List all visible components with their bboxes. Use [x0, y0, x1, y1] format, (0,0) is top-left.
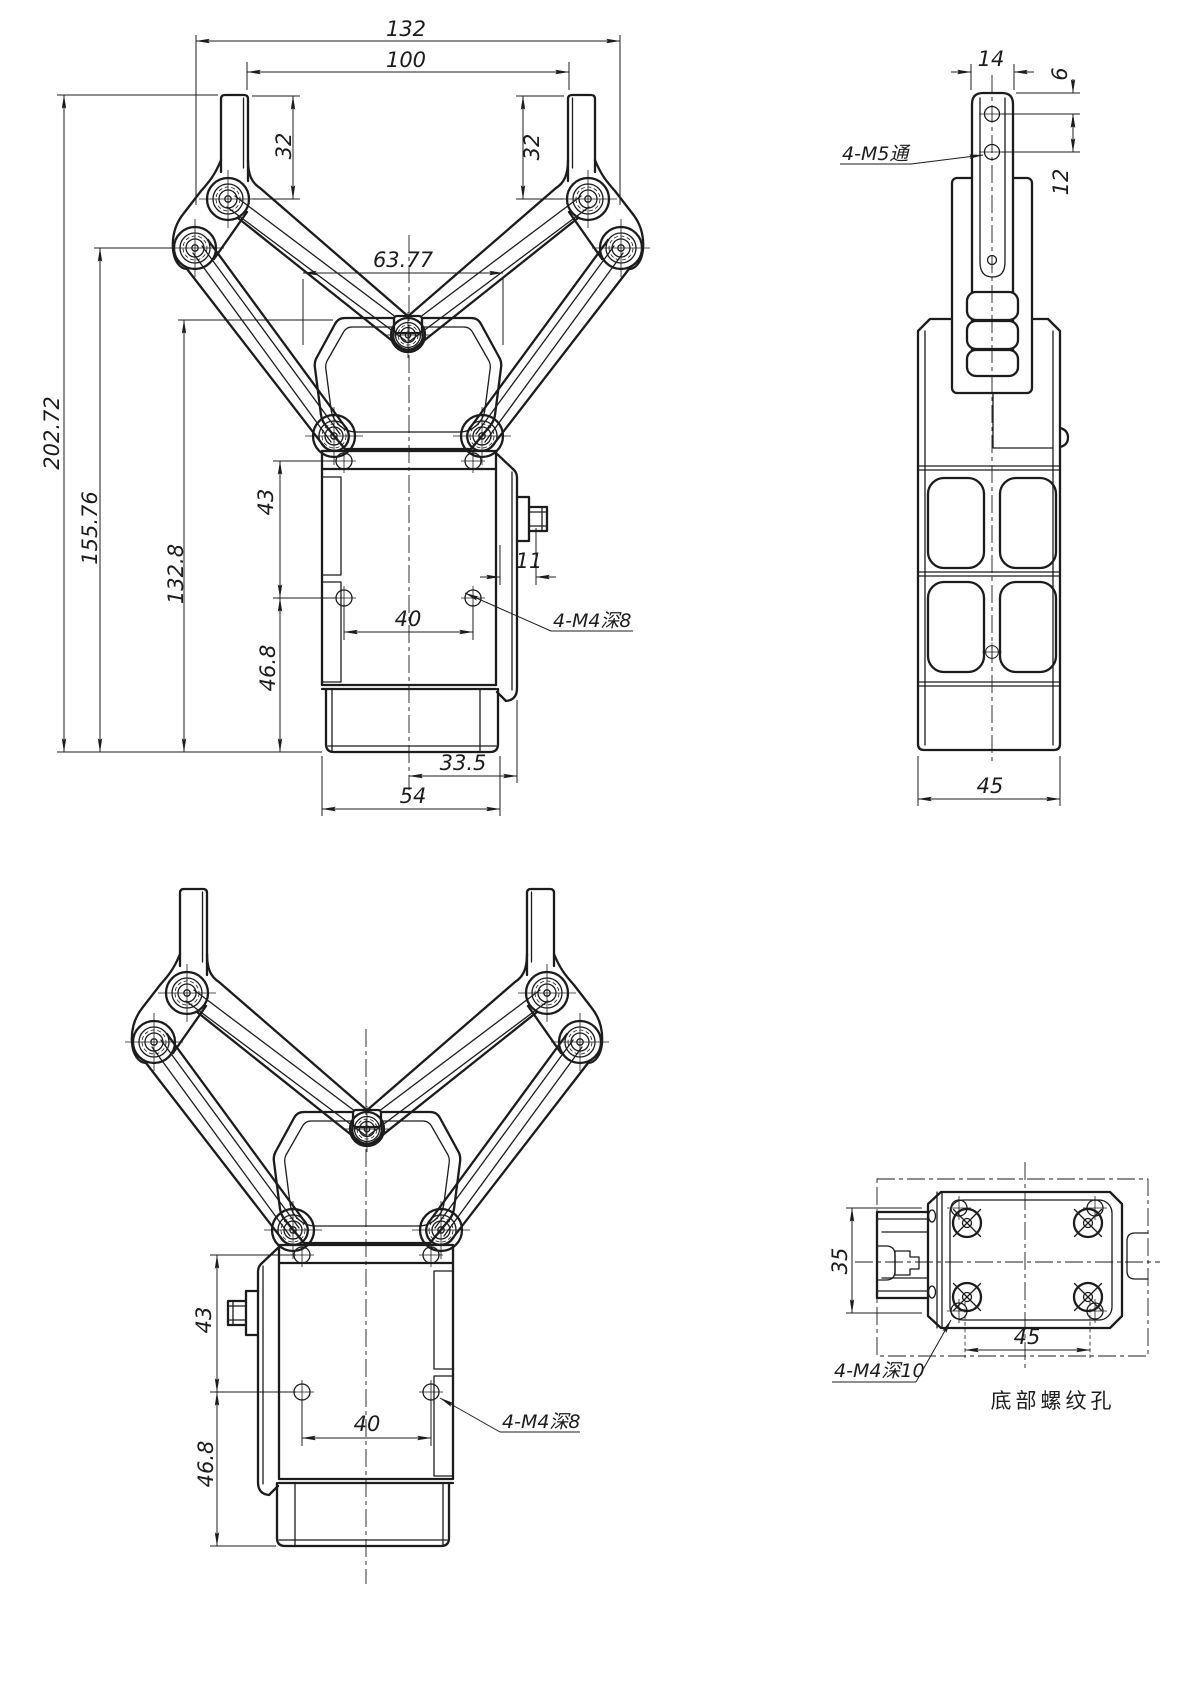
dim-connector-offset-value: 33.5	[440, 751, 487, 775]
dim-hole-hspace-value: 40	[395, 607, 422, 631]
gripper-front-geometry	[166, 95, 650, 790]
dim-fingertip-width-value: 14	[978, 47, 1005, 71]
dim-finger-right-value: 32	[520, 134, 544, 161]
dim-tip-hole-offset-value: 6	[1048, 67, 1072, 80]
dim-body-width-value: 54	[400, 784, 427, 808]
dim-tip-hole-pitch-value: 12	[1049, 169, 1073, 196]
bottom-fingertip-section	[877, 1212, 1148, 1298]
view-side: 14 6 12 4-M5通 45	[840, 47, 1080, 806]
dim-hole-hspace-m-value: 40	[354, 1412, 381, 1436]
dim-base-section-height: 46.8	[256, 598, 280, 752]
dim-hole-hspace: 40	[344, 604, 473, 640]
callout-mirrored-thread-text: 4-M4深8	[502, 1411, 581, 1433]
dim-pivot-height-value: 155.76	[78, 491, 102, 564]
dim-hole-vspace-m-value: 43	[192, 1307, 216, 1334]
dim-body-depth: 45	[918, 756, 1060, 806]
view-bottom: 35 45 4-M4深10 底部螺纹孔	[828, 1162, 1160, 1413]
dim-base-height-m: 46.8	[194, 1392, 276, 1546]
dim-opening-width: 100	[247, 48, 569, 90]
dim-hole-hspace-m: 40	[302, 1398, 431, 1446]
dim-hole-vspace: 43	[254, 461, 337, 598]
engineering-drawing-canvas: 132 100 32 32 63.77 202.72	[0, 0, 1200, 1691]
bottom-view-caption: 底部螺纹孔	[991, 1389, 1116, 1413]
drawing-sheet: 132 100 32 32 63.77 202.72	[0, 0, 1200, 1691]
dim-finger-left: 32	[252, 96, 300, 199]
dim-body-top-height-value: 132.8	[164, 544, 188, 604]
dim-overall-width: 132	[196, 17, 620, 205]
callout-bottom-thread-text: 4-M4深10	[834, 1360, 925, 1382]
callout-bottom-thread: 4-M4深10	[832, 1320, 951, 1382]
bottom-view-boundary	[877, 1179, 1148, 1356]
dim-hole-row-spacing-value: 35	[828, 1248, 852, 1275]
dim-hole-vspace-m: 43	[192, 1255, 296, 1392]
callout-mirrored-thread: 4-M4深8	[440, 1398, 581, 1433]
callout-side-thread: 4-M5通	[840, 143, 983, 165]
dim-base-height-m-value: 46.8	[194, 1441, 218, 1488]
dim-finger-right: 32	[516, 96, 564, 199]
dim-body-top-height: 132.8	[164, 320, 333, 752]
dim-fingertip-width: 14	[951, 47, 1034, 90]
callout-side-thread-text: 4-M5通	[842, 143, 911, 165]
dim-opening-width-value: 100	[386, 48, 426, 72]
side-fingertip-clamp	[952, 75, 1032, 765]
callout-front-thread-text: 4-M4深8	[553, 610, 632, 632]
dim-overall-width-value: 132	[386, 17, 426, 41]
dim-body-depth-value: 45	[977, 774, 1004, 798]
dim-connector-offset: 33.5	[409, 700, 517, 783]
view-front-mirrored: 43 46.8 40 4-M4深8	[125, 889, 609, 1584]
dim-link-span-value: 63.77	[373, 248, 434, 272]
dim-overall-height-value: 202.72	[40, 396, 64, 469]
dim-hole-col-spacing-value: 45	[1014, 1325, 1041, 1349]
view-front-open: 132 100 32 32 63.77 202.72	[40, 17, 650, 816]
dim-hole-vspace-value: 43	[254, 489, 278, 516]
callout-front-thread: 4-M4深8	[465, 593, 633, 632]
dim-finger-left-value: 32	[272, 133, 296, 160]
dim-hole-col-spacing: 45	[965, 1302, 1090, 1358]
dim-base-section-height-value: 46.8	[256, 645, 280, 692]
dim-pivot-height: 155.76	[78, 248, 172, 752]
dim-connector-protrusion-value: 11	[516, 549, 543, 573]
